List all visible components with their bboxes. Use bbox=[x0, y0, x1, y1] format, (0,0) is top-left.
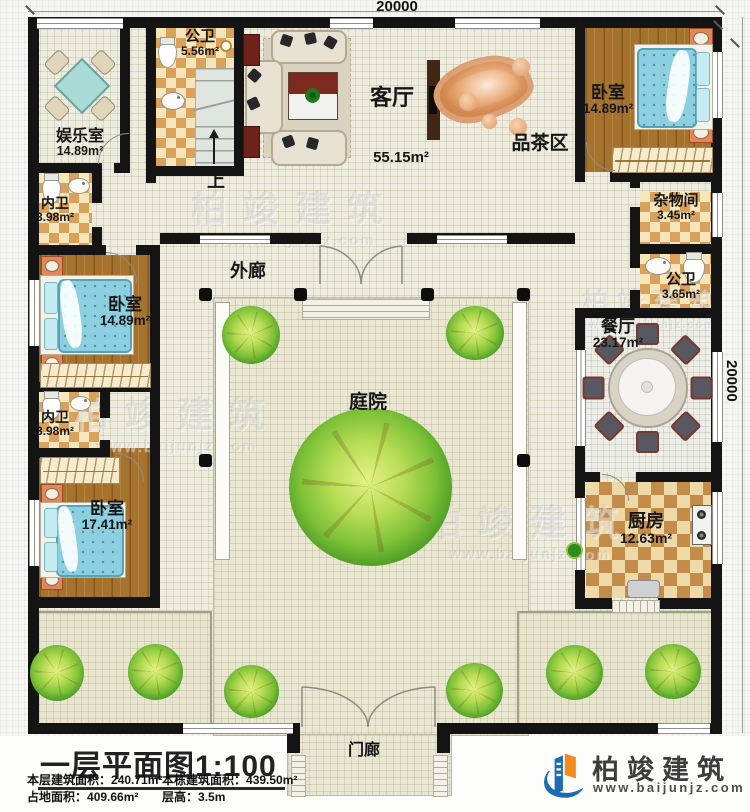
room-label-bedroom-ml: 卧室 14.89m² bbox=[90, 296, 160, 329]
column bbox=[199, 454, 212, 467]
sofa-pillow bbox=[304, 32, 317, 45]
tree bbox=[128, 644, 183, 700]
wall bbox=[636, 472, 722, 482]
porch-steps-right bbox=[433, 755, 448, 797]
stair-arrow-line bbox=[213, 138, 215, 164]
tree bbox=[446, 663, 503, 718]
pillow bbox=[44, 318, 58, 350]
column bbox=[199, 288, 212, 301]
column bbox=[517, 454, 530, 467]
wall bbox=[575, 308, 722, 318]
wall bbox=[92, 227, 102, 245]
wall bbox=[146, 17, 156, 183]
dining-chair bbox=[583, 377, 605, 400]
stat-floor-area: 本层建筑面积：240.71m² bbox=[27, 771, 162, 788]
wall bbox=[575, 318, 585, 350]
room-label-bedroom-tr: 卧室 14.89m² bbox=[570, 84, 646, 117]
tree bbox=[224, 665, 279, 718]
window bbox=[37, 18, 123, 29]
room-label-kitchen: 厨房 12.63m² bbox=[610, 512, 682, 547]
room-label-bath-top: 公卫 5.56m² bbox=[160, 29, 240, 58]
pillow bbox=[696, 88, 710, 122]
room-label-bath-inner-top: 内卫 3.98m² bbox=[26, 196, 84, 224]
courtyard-steps bbox=[302, 299, 430, 320]
dimension-right: 20000 bbox=[723, 338, 740, 424]
window bbox=[29, 280, 40, 346]
wall bbox=[630, 182, 640, 188]
window bbox=[658, 723, 710, 734]
dimension-top: 20000 bbox=[352, 0, 442, 15]
window bbox=[437, 235, 507, 244]
dimension-line-right bbox=[742, 17, 743, 733]
wall bbox=[28, 245, 106, 255]
dining-table-center bbox=[641, 381, 653, 393]
room-label-living: 客厅 bbox=[352, 86, 432, 110]
wall-outer-left bbox=[28, 17, 39, 734]
brand-url: www.baijunjz.com bbox=[593, 780, 745, 795]
wall bbox=[630, 254, 640, 268]
plant bbox=[566, 542, 583, 559]
stat-building-area: 本栋建筑面积：439.50m² bbox=[162, 771, 297, 788]
nightstand bbox=[41, 484, 63, 504]
wall bbox=[575, 482, 585, 498]
wall bbox=[114, 163, 129, 173]
corner-tick bbox=[730, 38, 740, 48]
wall bbox=[630, 244, 722, 254]
room-label-bedroom-bl: 卧室 17.41m² bbox=[72, 500, 142, 533]
wall bbox=[28, 597, 160, 608]
tea-stone bbox=[482, 114, 497, 129]
wardrobe bbox=[612, 147, 713, 173]
room-label-bath-right: 公卫 3.65m² bbox=[645, 272, 717, 301]
room-label-corridor: 外廊 bbox=[222, 262, 274, 281]
porch-door-arc bbox=[299, 687, 438, 729]
room-label-bath-inner-bot: 内卫 3.98m² bbox=[26, 410, 84, 438]
window bbox=[183, 723, 293, 734]
stat-land-area: 占地面积：409.66m² bbox=[27, 788, 138, 805]
stove bbox=[692, 505, 712, 545]
window bbox=[200, 235, 270, 244]
room-label-tea: 品茶区 bbox=[495, 134, 585, 155]
tree bbox=[222, 306, 280, 364]
dimension-tick bbox=[25, 5, 35, 15]
stair-arrow-head bbox=[209, 129, 219, 138]
kitchen-sink bbox=[627, 580, 660, 598]
courtyard-door-arc bbox=[317, 246, 405, 286]
wall bbox=[658, 598, 722, 609]
window bbox=[712, 193, 723, 237]
sink bbox=[161, 92, 185, 110]
porch-wall-right bbox=[437, 723, 450, 753]
nightstand bbox=[41, 256, 63, 276]
window bbox=[29, 500, 40, 566]
tree bbox=[446, 306, 504, 360]
window bbox=[712, 352, 723, 442]
wall-outer-top bbox=[28, 17, 722, 28]
wall bbox=[28, 163, 102, 173]
pillow bbox=[44, 508, 58, 538]
dimension-tick bbox=[715, 5, 725, 15]
window bbox=[576, 498, 586, 570]
courtyard-big-tree bbox=[289, 408, 452, 566]
window bbox=[455, 18, 540, 29]
cabinet bbox=[243, 126, 260, 158]
brand-logo-icon bbox=[538, 746, 586, 798]
kitchen-door-steps bbox=[612, 600, 660, 613]
dining-chair bbox=[636, 431, 659, 453]
room-label-storage: 杂物间 3.45m² bbox=[642, 193, 710, 222]
stair-treads-upper bbox=[195, 68, 234, 88]
wall bbox=[575, 472, 600, 482]
room-label-entertainment: 娱乐室 14.89m² bbox=[30, 128, 130, 159]
wardrobe bbox=[40, 457, 120, 484]
wall bbox=[150, 392, 160, 608]
corridor-rail-right bbox=[512, 302, 527, 560]
wall bbox=[630, 207, 640, 244]
wall bbox=[100, 392, 110, 418]
pillow bbox=[44, 542, 58, 572]
window bbox=[712, 492, 723, 564]
column bbox=[517, 288, 530, 301]
window bbox=[712, 52, 723, 118]
room-label-dining: 餐厅 23.17m² bbox=[588, 318, 648, 351]
tree bbox=[30, 645, 84, 701]
tea-stone bbox=[512, 58, 530, 76]
stairs-up-label: 上 bbox=[202, 172, 230, 191]
cabinet bbox=[243, 34, 260, 66]
room-area-living: 55.15m² bbox=[356, 150, 446, 166]
table-plant bbox=[305, 88, 320, 103]
dining-chair bbox=[691, 377, 713, 400]
sink bbox=[68, 178, 90, 194]
column bbox=[294, 288, 307, 301]
room-label-courtyard: 庭院 bbox=[338, 393, 398, 414]
pillow bbox=[44, 282, 58, 314]
wardrobe bbox=[40, 363, 151, 388]
sink bbox=[70, 396, 91, 411]
tree bbox=[546, 645, 603, 700]
column bbox=[421, 288, 434, 301]
wall bbox=[575, 598, 612, 609]
pillow bbox=[696, 52, 710, 86]
wall bbox=[92, 173, 102, 203]
tree bbox=[645, 644, 701, 699]
wall bbox=[610, 172, 722, 182]
room-label-porch: 门廊 bbox=[334, 742, 394, 759]
tea-stone bbox=[459, 93, 477, 111]
stat-height: 层高：3.5m bbox=[162, 788, 225, 805]
window bbox=[330, 18, 373, 29]
